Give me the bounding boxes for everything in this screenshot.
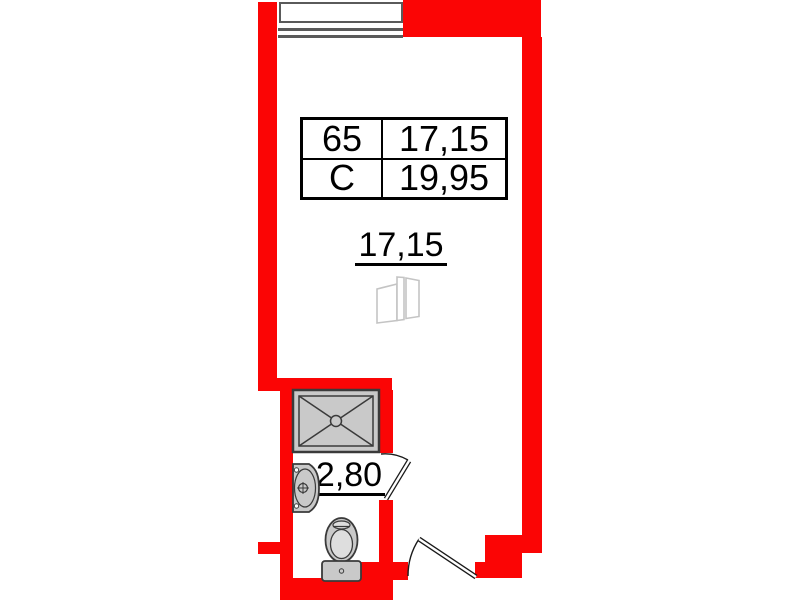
sink-icon — [293, 464, 319, 512]
bathroom-door-swing-icon — [381, 454, 409, 499]
floor-plan: 65 17,15 С 19,95 17,15 2,80 — [0, 0, 800, 600]
entry-door-swing-icon — [408, 539, 476, 577]
plan-linework — [0, 0, 800, 600]
wardrobe-icon — [377, 277, 419, 323]
shower-tray-icon — [293, 390, 379, 452]
toilet-icon — [322, 518, 361, 581]
